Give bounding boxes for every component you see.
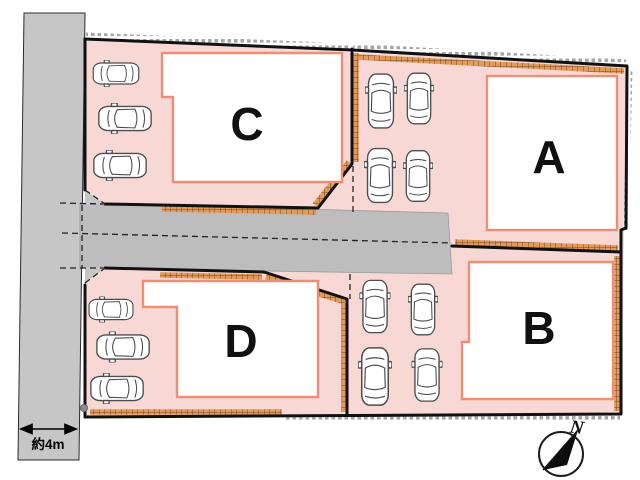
car-icon <box>89 297 133 323</box>
car-icon <box>93 60 139 87</box>
car-icon <box>91 373 143 404</box>
lot-a-label: A <box>532 131 565 183</box>
site-plan: C A D B 約4m <box>0 0 640 480</box>
car-icon <box>97 332 149 363</box>
car-icon <box>412 349 443 401</box>
lot-b-label: B <box>522 302 555 354</box>
car-icon <box>364 149 396 203</box>
car-icon <box>408 284 438 335</box>
road-vertical <box>18 13 85 460</box>
car-icon <box>365 74 397 128</box>
car-icon <box>94 150 146 181</box>
car-icon <box>360 280 391 332</box>
road-width-label: 約4m <box>31 436 64 452</box>
car-icon <box>404 73 434 124</box>
lot-c-label: C <box>230 98 263 150</box>
car-icon <box>99 103 151 134</box>
car-icon <box>358 348 392 405</box>
boundary-marker-dot <box>80 404 87 411</box>
lot-d-label: D <box>224 315 257 367</box>
car-icon <box>403 151 433 202</box>
site-plan-canvas: C A D B 約4m <box>0 0 640 480</box>
